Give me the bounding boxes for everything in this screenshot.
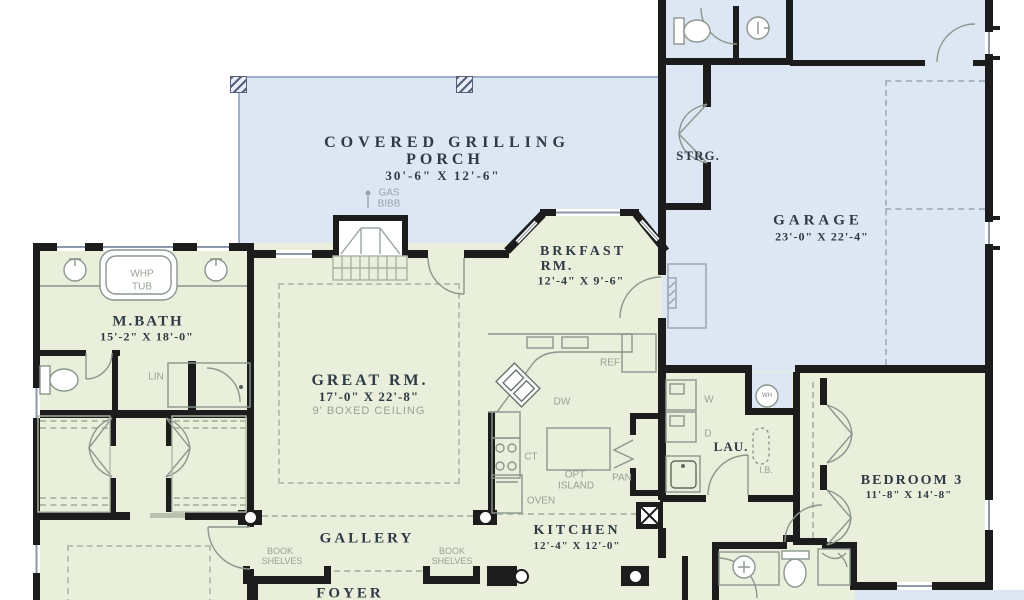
room-label-gallery: GALLERY [320,531,415,548]
wall [793,372,800,544]
window [985,500,993,530]
fixture-label-water-heater: WH [762,393,772,399]
gallery-column [243,510,258,525]
closet-rod [174,420,246,422]
porch-post [230,76,247,93]
closet-rod [174,427,246,429]
room-label-porch: COVERED GRILLING [324,134,570,152]
window [103,243,173,251]
wall [464,250,509,258]
window [57,243,85,251]
chase-box [636,502,663,529]
fixture-label-gas: GAS [378,188,399,199]
room-label-porch: PORCH [406,151,484,169]
fixture-label-cooktop: CT [524,452,537,463]
closet-rod [40,504,108,506]
wall [820,378,827,405]
wall [712,542,787,549]
foyer-opening-dash [334,570,422,572]
wall [790,60,925,66]
window-tick [993,56,1000,60]
wall [662,58,790,65]
wall [786,0,793,65]
room-dims-porch: 30'-6" X 12'-6" [385,168,500,184]
fixture-label-island: OPT [565,470,586,481]
window [897,582,932,590]
wall [745,365,752,413]
window [33,545,40,573]
garage-storage-dash [885,80,887,365]
doorway-threshold [150,513,185,518]
room-dims-garage: 23'-0" X 22'-4" [775,230,869,245]
room-label-breakfast: BRKFAST [540,244,626,260]
water-heater-niche [752,373,792,408]
fireplace-interior [339,221,402,256]
room-label-storage: STRG. [676,148,720,164]
wall [658,0,666,275]
wall [488,412,495,519]
bookshelf-wall [473,566,480,584]
wall [112,350,118,412]
room-label-kitchen: KITCHEN [533,523,620,539]
closet-rod [174,504,246,506]
wall [748,495,795,502]
garage-storage-dash [885,80,985,82]
bedroom3-closet-rod [812,382,814,538]
wall [682,556,688,600]
fixture-label-whirlpool: WHP [130,269,153,280]
wall [658,318,666,500]
room-label-foyer: FOYER [316,586,384,600]
wall [795,365,987,373]
wall [630,413,636,435]
wall [820,465,827,490]
wall [166,478,172,512]
fixture-label-bookshelves: BOOK [439,546,465,556]
bookshelf-wall [324,566,331,584]
fixture-label-dishwasher: DW [554,397,571,408]
wall [660,365,752,373]
wall [745,408,799,415]
room-label-master-bath: M.BATH [112,314,183,331]
wall [110,416,116,446]
room-note-great-room: 9' BOXED CEILING [313,405,426,417]
wall [36,350,86,356]
fixture-label-whirlpool: TUB [132,282,152,293]
closet-rod [40,420,108,422]
window [276,250,312,258]
wall [247,243,254,527]
bookshelf-wall [423,566,430,584]
wall [703,65,711,107]
window-tick [993,26,1000,30]
porch-post [456,76,473,93]
window [985,32,993,54]
garage-region [662,0,993,372]
fireplace-wall [402,215,408,256]
wall [33,410,254,418]
window [556,209,620,216]
wall [122,512,130,520]
fixture-label-linen: LIN [148,372,164,383]
wall [188,361,196,411]
master-ceiling-outline [67,545,211,600]
bookshelf-wall [423,576,480,584]
gallery-opening-dash [262,515,473,517]
room-dims-breakfast: 12'-4" X 9'-6" [538,274,625,289]
floor-plan: COVERED GRILLING PORCH 30'-6" X 12'-6" G… [0,0,1024,600]
room-label-great-room: GREAT RM. [311,372,428,390]
window [197,243,229,251]
fixture-label-bookshelves: BOOK [267,546,293,556]
wall [783,535,793,542]
window-tick [993,246,1000,250]
foyer-post [487,566,517,586]
fixture-label-island: ISLAND [558,481,594,492]
wall [251,584,258,600]
fixture-label-refrigerator: REF [600,358,620,369]
wall [658,203,711,210]
foyer-column [514,569,529,584]
wall [712,542,719,600]
window [33,388,40,418]
wall [660,495,706,502]
kitchen-opening-dash [497,513,637,515]
fixture-label-dryer: D [704,429,711,440]
foyer-column [628,569,643,584]
wall [166,416,172,446]
fixture-label-gas: BIBB [378,199,401,210]
fixture-label-bookshelves: SHELVES [262,556,303,566]
fixture-label-oven: OVEN [527,496,555,507]
window-tick [993,216,1000,220]
wall [733,6,739,58]
room-dims-master-bath: 15'-2" X 18'-0" [100,330,194,345]
wall [658,528,666,558]
bookshelf-wall [243,576,331,584]
wall [408,250,428,258]
front-stoop-region [855,590,1024,600]
garage-storage-dash [885,208,985,210]
room-dims-kitchen: 12'-4" X 12'-0" [533,540,620,552]
fixture-label-washer: W [704,395,713,406]
room-dims-bedroom3: 11'-8" X 14'-8" [866,489,953,501]
wall [33,512,123,520]
bookshelf-wall [243,566,250,584]
closet-rod [174,497,246,499]
room-dims-great-room: 17'-0" X 22'-8" [319,389,419,405]
closet-rod [40,427,108,429]
room-label-garage: GARAGE [773,213,863,230]
closet-rod [40,497,108,499]
room-label-laundry: LAU. [714,439,749,455]
fixture-label-bookshelves: SHELVES [432,556,473,566]
room-label-bedroom3: BEDROOM 3 [861,473,963,489]
fixture-label-ironing-board: I.B. [759,465,773,475]
wall [110,478,116,512]
window [985,222,993,244]
fixture-label-pantry: PAN [612,473,632,484]
gallery-column [478,510,493,525]
